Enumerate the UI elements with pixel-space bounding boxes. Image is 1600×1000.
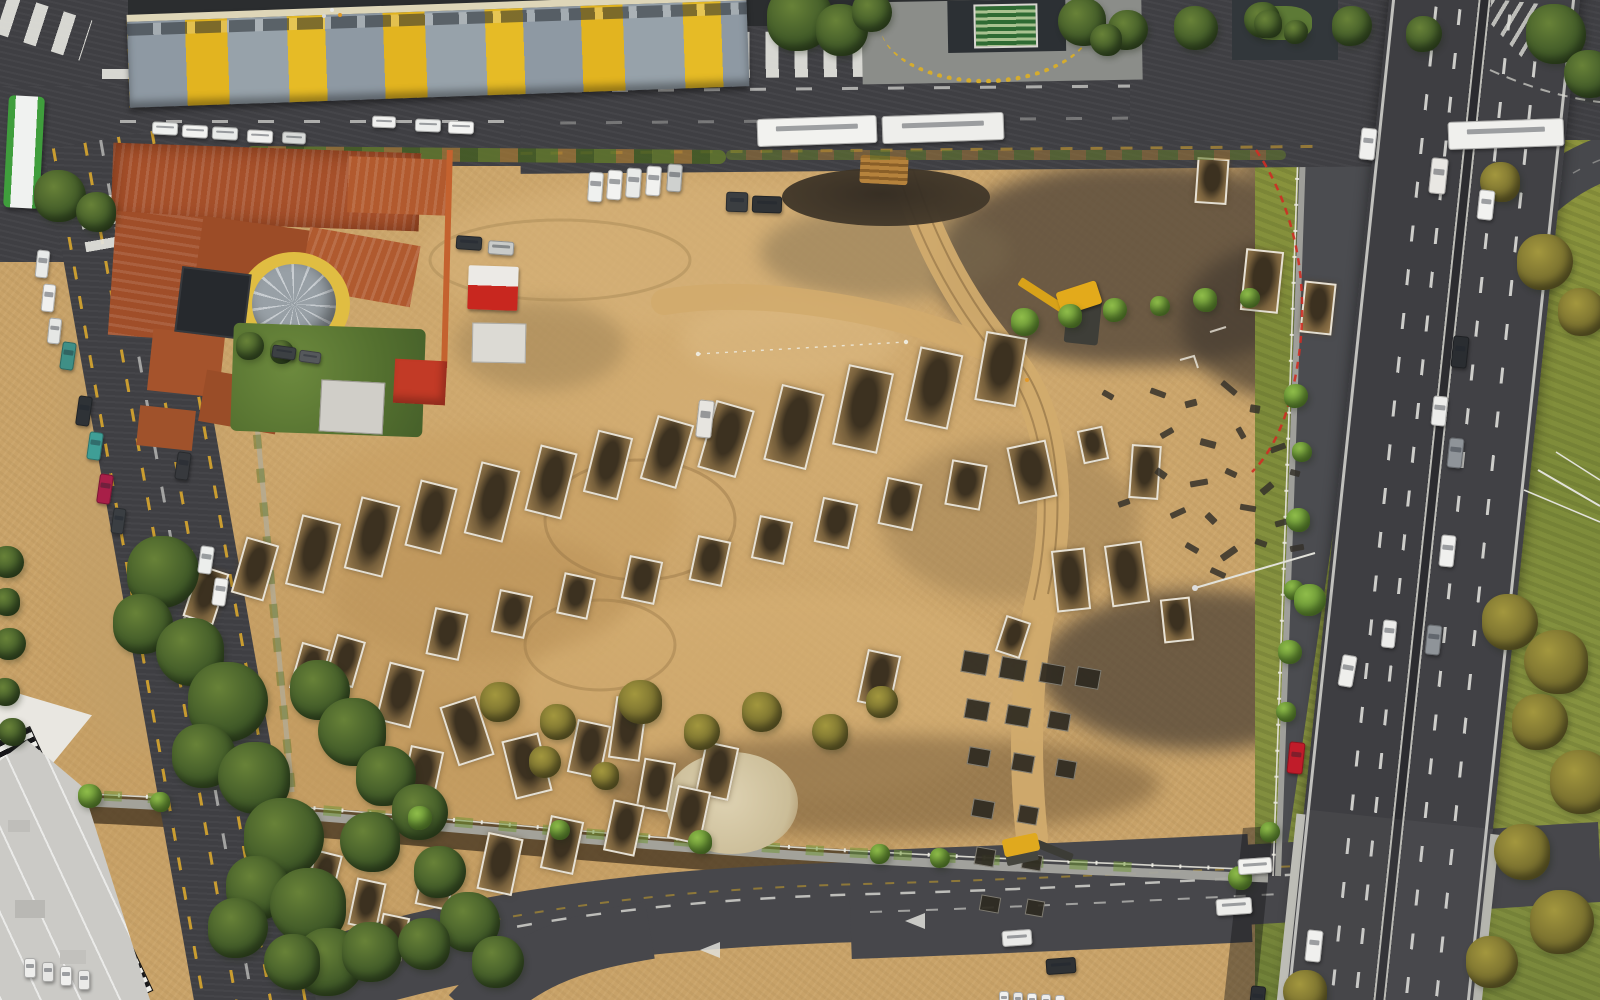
car — [24, 958, 36, 978]
car — [247, 129, 274, 143]
car — [1027, 993, 1037, 1000]
car — [1438, 534, 1456, 567]
car — [271, 344, 297, 360]
car — [606, 170, 623, 201]
car — [415, 119, 441, 133]
car — [1055, 995, 1065, 1000]
car — [197, 545, 215, 575]
car — [372, 116, 396, 129]
car — [1013, 992, 1023, 1000]
car — [42, 962, 54, 982]
bus — [882, 112, 1005, 144]
car — [1237, 857, 1272, 875]
aerial-photo-excavation-site — [0, 0, 1600, 1000]
car — [47, 317, 63, 344]
person-dot — [322, 14, 326, 18]
car — [999, 991, 1009, 1000]
car — [35, 249, 51, 278]
car — [1358, 127, 1377, 160]
car — [1381, 619, 1398, 648]
person-dot — [1025, 378, 1029, 382]
car — [587, 172, 604, 203]
car — [1001, 929, 1032, 947]
car — [1428, 157, 1449, 195]
car — [1249, 985, 1267, 1000]
car — [695, 399, 715, 438]
person-dot — [338, 13, 342, 17]
car — [488, 240, 515, 256]
car — [1337, 654, 1357, 688]
vehicles-layer — [0, 0, 1600, 1000]
car — [211, 577, 229, 607]
car — [182, 124, 209, 138]
car — [1286, 741, 1305, 774]
person-dot — [330, 8, 334, 12]
bus — [757, 115, 878, 147]
car — [456, 235, 483, 251]
car — [448, 121, 474, 135]
car — [666, 164, 683, 193]
car — [86, 431, 104, 461]
car — [1424, 624, 1442, 655]
car — [625, 168, 642, 199]
car — [152, 121, 179, 135]
car — [96, 473, 114, 505]
car — [1304, 929, 1323, 962]
car — [752, 195, 783, 213]
car — [174, 451, 192, 481]
car — [1446, 437, 1464, 468]
car — [1041, 994, 1051, 1000]
car — [282, 131, 307, 144]
car — [1045, 957, 1076, 975]
car — [1450, 335, 1469, 368]
car — [60, 966, 72, 986]
bus — [1448, 118, 1565, 150]
car — [726, 192, 749, 213]
car — [78, 970, 90, 990]
car — [75, 395, 93, 427]
car — [41, 283, 57, 312]
car — [1430, 395, 1448, 426]
car — [59, 341, 77, 371]
car — [645, 166, 662, 197]
car — [212, 126, 239, 140]
car — [110, 507, 126, 535]
car — [298, 350, 321, 365]
car — [1476, 189, 1495, 221]
car — [1215, 897, 1252, 916]
